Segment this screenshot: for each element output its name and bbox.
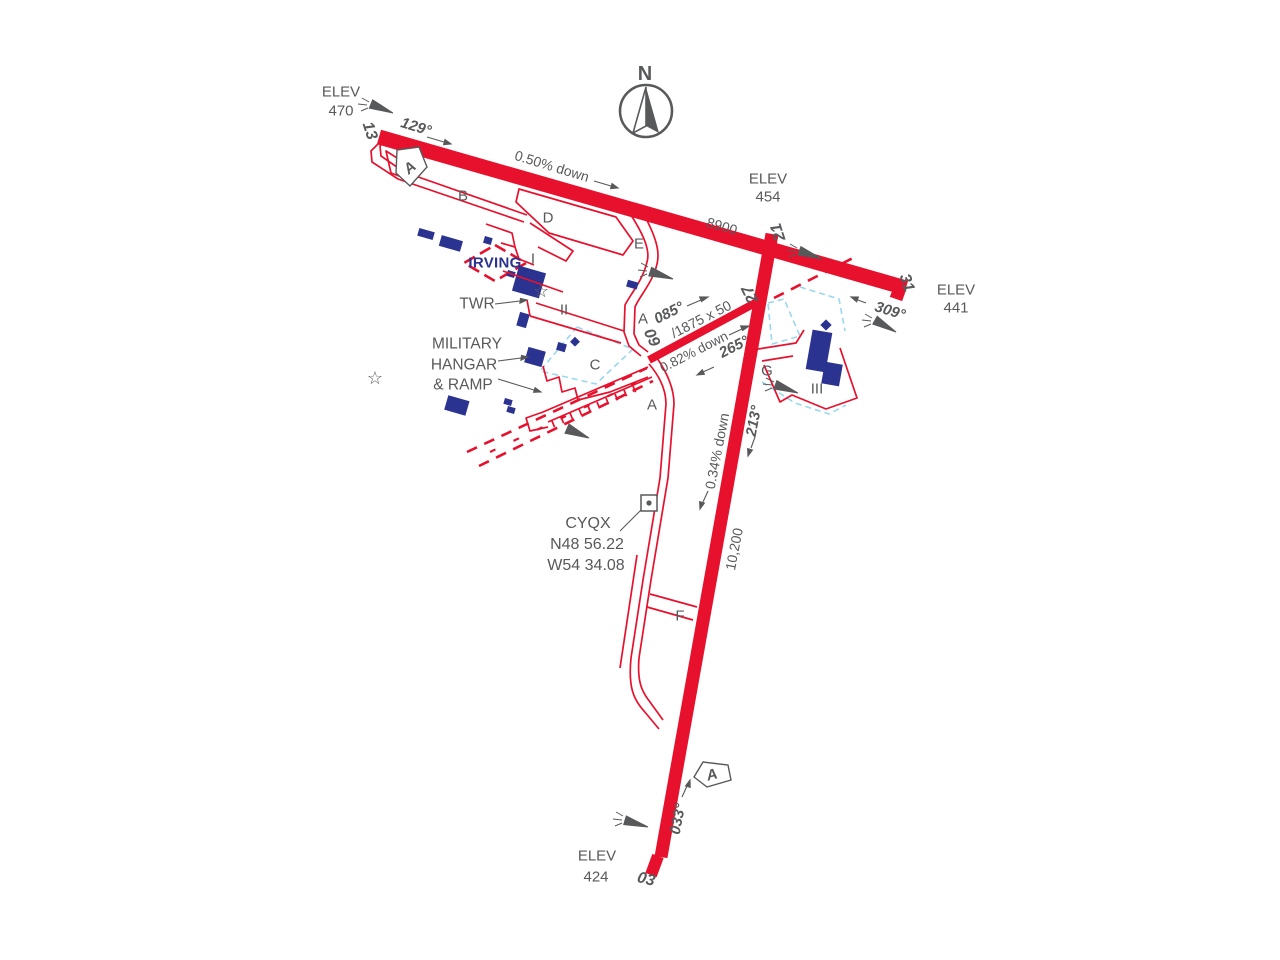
heading-033-arrow-tip: [686, 780, 691, 787]
heading-129-arrow-tip: [444, 140, 451, 145]
building: [483, 236, 493, 245]
taxiway-a-label-north: A: [638, 312, 648, 327]
ramp-leader-line: [498, 379, 534, 390]
building: [626, 280, 639, 290]
elev-454-label: ELEV: [749, 172, 787, 187]
heading-129-arrow-line: [427, 137, 444, 142]
building: [570, 337, 580, 347]
taxiway-e-label: E: [634, 237, 644, 252]
elev-424-label: ELEV: [578, 849, 616, 864]
heading-033-arrow-line: [682, 786, 687, 797]
taxiway-b-label: B: [458, 189, 468, 204]
closed-runway-sw-edge1: [467, 368, 647, 452]
slope-034-arrow-tip: [700, 502, 705, 509]
military-label-line1: MILITARY: [432, 336, 502, 352]
wind-indicator-arrow: [565, 424, 589, 438]
compass-needle-outline: [633, 87, 646, 133]
heading-309-arrow-line: [858, 300, 866, 303]
airport-longitude-label: W54 34.08: [547, 558, 624, 574]
arp-dot: [646, 500, 651, 505]
apron-i-outline2: [530, 223, 573, 261]
building: [417, 228, 435, 240]
taxiway-c-label: C: [590, 358, 601, 373]
slope-034-arrow-line: [703, 491, 708, 502]
elev-441-label: ELEV: [937, 283, 975, 298]
north-label: N: [638, 64, 652, 84]
twr-leader-line: [495, 301, 520, 304]
taxiway-g-label: G: [761, 364, 773, 379]
apron-ii-label: II: [560, 303, 568, 318]
elev-454-value: 454: [755, 190, 780, 205]
arp-leader: [620, 510, 641, 531]
heading-265-arrow-tip: [697, 370, 704, 375]
taxiway-c-line1: [543, 367, 648, 412]
apron-ii-corridor1: [536, 303, 624, 331]
runway-13-31: [379, 137, 906, 288]
closed-runway-sw-edge2: [479, 381, 653, 466]
building: [820, 319, 831, 330]
taxiway-a-label-south: A: [647, 398, 657, 413]
airport-latitude-label: N48 56.22: [550, 537, 624, 553]
cyan-outline-intersection-left: [768, 299, 800, 344]
slope-082-arrow-tip: [741, 326, 749, 331]
building: [444, 395, 469, 415]
taxiway-g-line1: [758, 330, 804, 349]
twr-leader-tip: [520, 298, 527, 303]
slope-050-arrow-line: [594, 181, 611, 186]
irving-label: IRVING: [468, 256, 521, 271]
star-icon: ☆: [533, 282, 549, 300]
taxiway-a-line1: [630, 364, 666, 729]
star-icon: ☆: [367, 369, 383, 387]
elev-470-label: ELEV: [322, 85, 360, 100]
elev-424-arrow-rays: [613, 812, 623, 826]
apron-iii-label: III: [811, 382, 824, 397]
taxiway-g-line2: [762, 356, 793, 361]
taxiway-d-label: D: [543, 211, 554, 226]
military-label-line2: HANGAR: [431, 357, 497, 373]
heading-085-arrow-tip: [700, 297, 708, 302]
hangar-leader-line: [498, 358, 521, 361]
elev-441-arrow-rays: [862, 314, 872, 327]
elev-470-arrow: [369, 100, 393, 113]
elev-441-value: 441: [943, 301, 968, 316]
apron-iii-building: [821, 362, 843, 387]
heading-213-arrow-line: [751, 437, 755, 448]
heading-213-arrow-tip: [748, 449, 753, 456]
heading-085-arrow-line: [687, 300, 701, 306]
building: [503, 398, 512, 406]
airport-diagram: ELEV 470 N 13 129° 0.50% down 8900 31 30…: [0, 0, 1280, 960]
taxiway-f-stub2: [647, 607, 693, 620]
airport-code-label: CYQX: [565, 516, 610, 532]
elev-470-value: 470: [328, 104, 353, 119]
building: [439, 235, 463, 252]
slope-050-arrow-tip: [611, 184, 618, 189]
airport-diagram-geometry: [0, 0, 1280, 960]
taxiway-f-stub1: [650, 594, 697, 607]
building: [506, 406, 515, 414]
elev-424-value: 424: [583, 870, 608, 885]
twr-label: TWR: [459, 296, 494, 312]
cyan-outline-c-area: [540, 327, 633, 384]
compass-needle-fill: [646, 87, 659, 133]
heading-309-arrow-tip: [851, 297, 858, 302]
taxiway-f-label: F: [675, 609, 684, 624]
apron-i-label: I: [531, 252, 535, 267]
ramp-leader-tip: [534, 388, 541, 393]
north-compass: [620, 85, 672, 137]
building: [516, 312, 529, 328]
elev-424-arrow: [624, 816, 648, 827]
military-label-line3: & RAMP: [433, 377, 492, 393]
heading-265-arrow-line: [703, 367, 714, 372]
beacon-arrow-g: [774, 381, 798, 393]
apron-ii-stub: [527, 300, 530, 316]
